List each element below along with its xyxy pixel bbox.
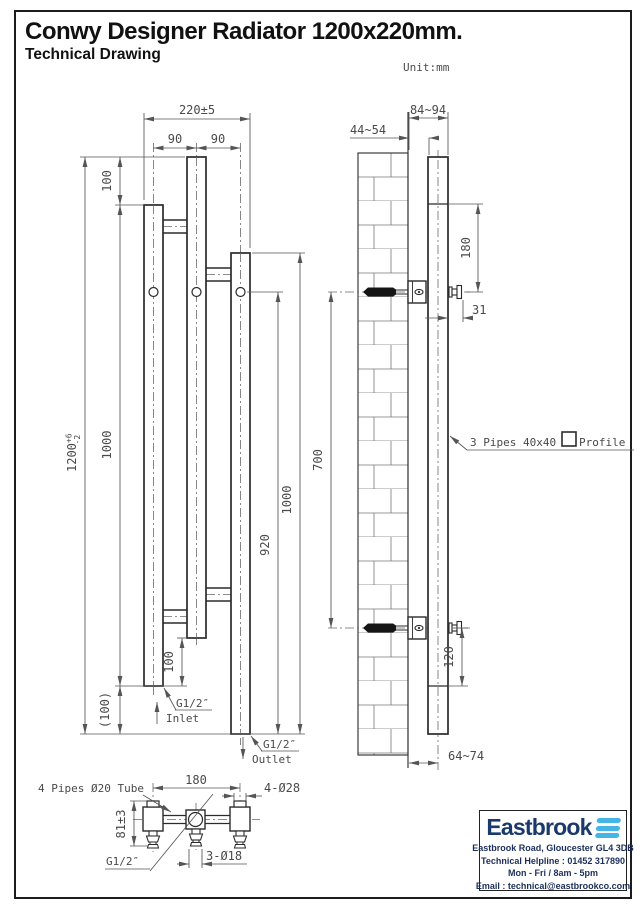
side-view: 84~94 44~54 180 31 700 120 64~74 3 Pipes… bbox=[311, 61, 634, 770]
profile-note-suffix: Profile bbox=[579, 436, 625, 449]
dim-bottom-offset: 100 bbox=[162, 651, 176, 673]
address-line: Eastbrook Road, Gloucester GL4 3DB bbox=[472, 842, 634, 855]
dim-overall-width: 220±5 bbox=[179, 103, 215, 117]
dim-bottom-height: 81±3 bbox=[114, 810, 128, 839]
dim-caps: 4-Ø28 bbox=[264, 781, 300, 795]
bottom-view: 4 Pipes Ø20 Tube 180 4-Ø28 81±3 G1/2″ 3-… bbox=[38, 773, 300, 871]
manufacturer-box: Eastbrook Eastbrook Road, Gloucester GL4… bbox=[479, 810, 627, 891]
drawing-canvas: 220±5 90 90 1200+6-2 100 1000 (100) 920 … bbox=[0, 0, 643, 909]
inlet-thread-label: G1/2″ bbox=[176, 697, 209, 710]
email-line: Email : technical@eastbrookco.com bbox=[472, 880, 634, 893]
dim-depth-outer: 84~94 bbox=[410, 103, 446, 117]
outlet-label: Outlet bbox=[252, 753, 292, 766]
dim-holes: 3-Ø18 bbox=[206, 849, 242, 863]
dim-overall-height: 1200+6-2 bbox=[65, 433, 83, 472]
dim-pitch-left: 90 bbox=[168, 132, 182, 146]
front-bars bbox=[144, 157, 250, 734]
dim-depth-inner: 44~54 bbox=[350, 123, 386, 137]
profile-note-prefix: 3 Pipes 40x40 bbox=[470, 436, 556, 449]
center-valve bbox=[190, 829, 203, 846]
pipes-label: 4 Pipes Ø20 Tube bbox=[38, 782, 144, 795]
dim-screw-projection: 31 bbox=[472, 303, 486, 317]
bottom-thread-label: G1/2″ bbox=[106, 855, 139, 868]
dim-bottom-ref: (100) bbox=[98, 692, 112, 728]
brand-row: Eastbrook bbox=[486, 814, 619, 841]
dim-bracket-span: 700 bbox=[311, 449, 325, 471]
dim-left-bar-length: 1000 bbox=[100, 431, 114, 460]
brand-name: Eastbrook bbox=[486, 814, 591, 841]
front-view: 220±5 90 90 1200+6-2 100 1000 (100) 920 … bbox=[65, 103, 306, 766]
helpline-line: Technical Helpline : 01452 317890 bbox=[472, 855, 634, 868]
dim-top-to-bracket: 180 bbox=[459, 237, 473, 259]
outlet-thread-label: G1/2″ bbox=[263, 738, 296, 751]
center-thread-hole bbox=[189, 813, 203, 827]
eastbrook-waves-icon bbox=[595, 818, 621, 838]
wall bbox=[358, 153, 408, 755]
bottom-tube-left bbox=[143, 801, 163, 848]
hours-line: Mon - Fri / 8am - 5pm bbox=[472, 867, 634, 880]
inlet-label: Inlet bbox=[166, 712, 199, 725]
dim-right-bar-length: 1000 bbox=[280, 486, 294, 515]
contact-block: Eastbrook Road, Gloucester GL4 3DB Techn… bbox=[472, 842, 634, 892]
technical-drawing-page: Conwy Designer Radiator 1200x220mm. Tech… bbox=[0, 0, 643, 909]
dim-pitch-right: 90 bbox=[211, 132, 225, 146]
bottom-tube-right bbox=[230, 801, 250, 848]
dim-wall-to-center: 64~74 bbox=[448, 749, 484, 763]
dim-hole-height: 920 bbox=[258, 534, 272, 556]
dim-top-offset: 100 bbox=[100, 170, 114, 192]
square-profile-icon bbox=[562, 432, 576, 446]
unit-label: Unit:mm bbox=[403, 61, 450, 74]
dim-bottom-width: 180 bbox=[185, 773, 207, 787]
dim-bracket-bottom: 120 bbox=[442, 646, 456, 668]
